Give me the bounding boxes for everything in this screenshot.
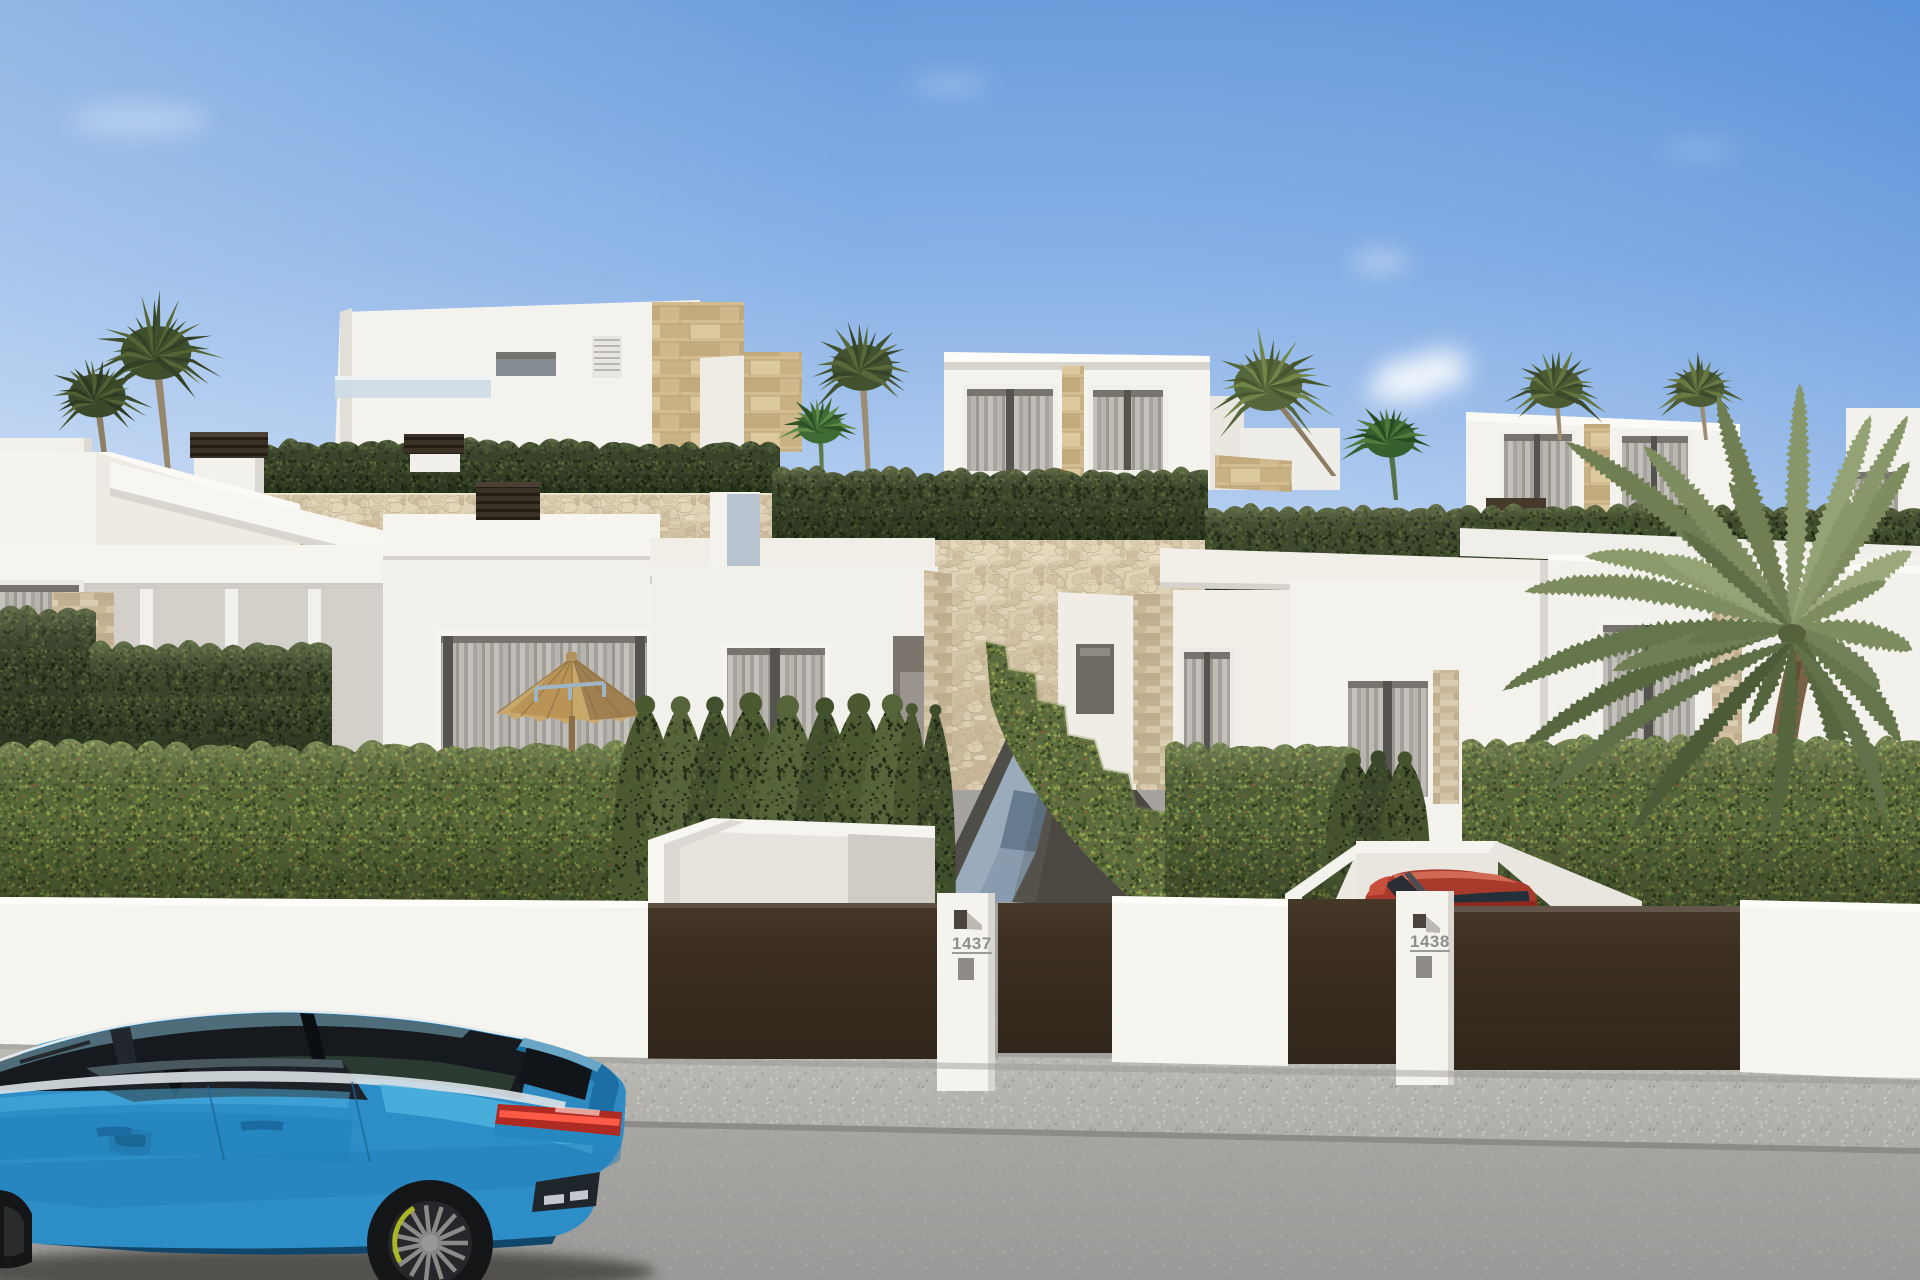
svg-text:1437: 1437 bbox=[952, 934, 992, 953]
svg-text:1438: 1438 bbox=[1410, 932, 1450, 951]
